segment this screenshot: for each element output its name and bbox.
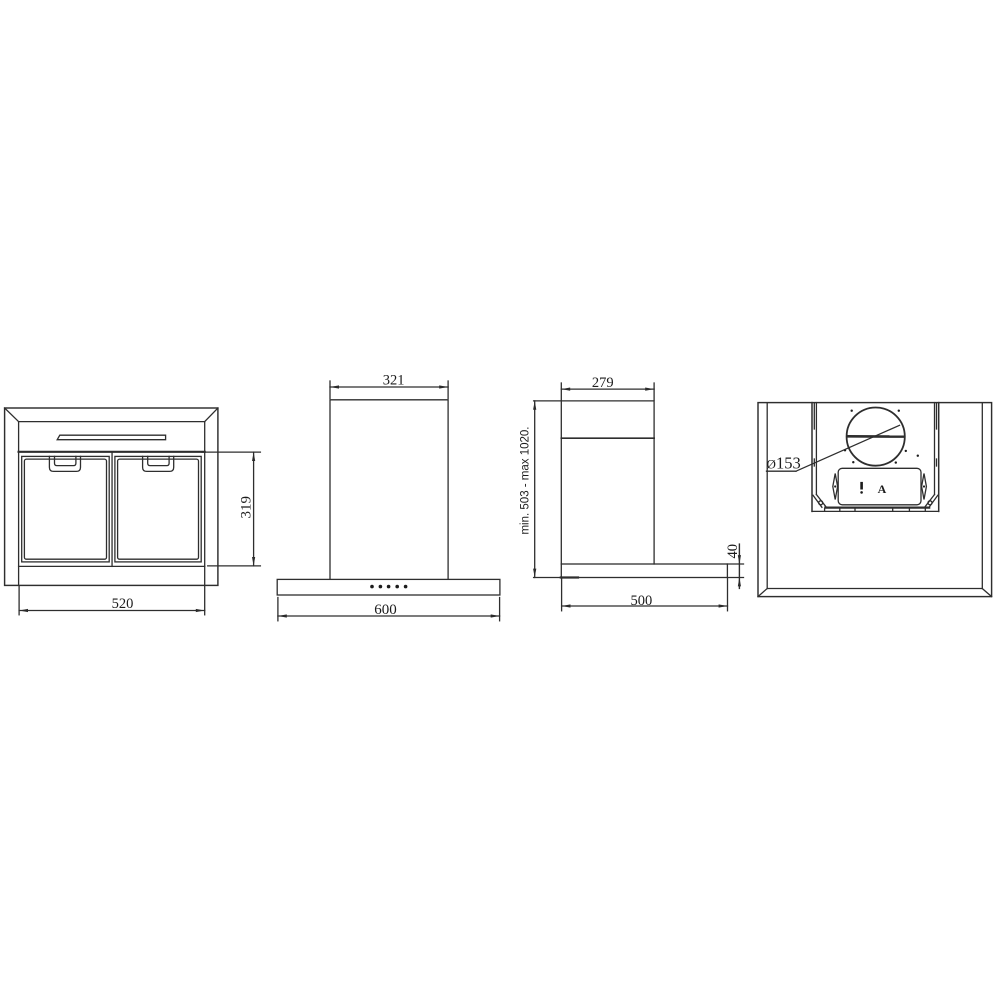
svg-text:Ø: Ø bbox=[767, 457, 776, 472]
svg-text:520: 520 bbox=[112, 596, 134, 612]
svg-text:321: 321 bbox=[383, 373, 405, 389]
svg-text:40: 40 bbox=[725, 544, 741, 559]
svg-text:min. 503 - max 1020.: min. 503 - max 1020. bbox=[519, 426, 531, 534]
svg-text:500: 500 bbox=[631, 593, 653, 609]
svg-text:A: A bbox=[878, 482, 887, 496]
svg-text:153: 153 bbox=[776, 454, 801, 473]
svg-text:600: 600 bbox=[374, 602, 397, 618]
svg-text:279: 279 bbox=[592, 375, 614, 391]
svg-text:319: 319 bbox=[238, 496, 254, 519]
